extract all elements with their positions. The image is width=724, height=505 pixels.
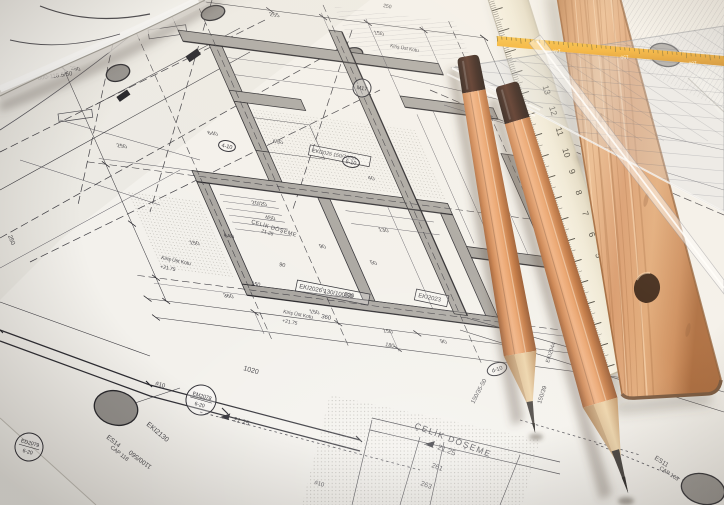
photo-canvas: 20/2045064015090250501304036015015090530…	[0, 0, 724, 505]
vignette	[0, 0, 724, 505]
blueprint-photo: 20/2045064015090250501304036015015090530…	[0, 0, 724, 505]
